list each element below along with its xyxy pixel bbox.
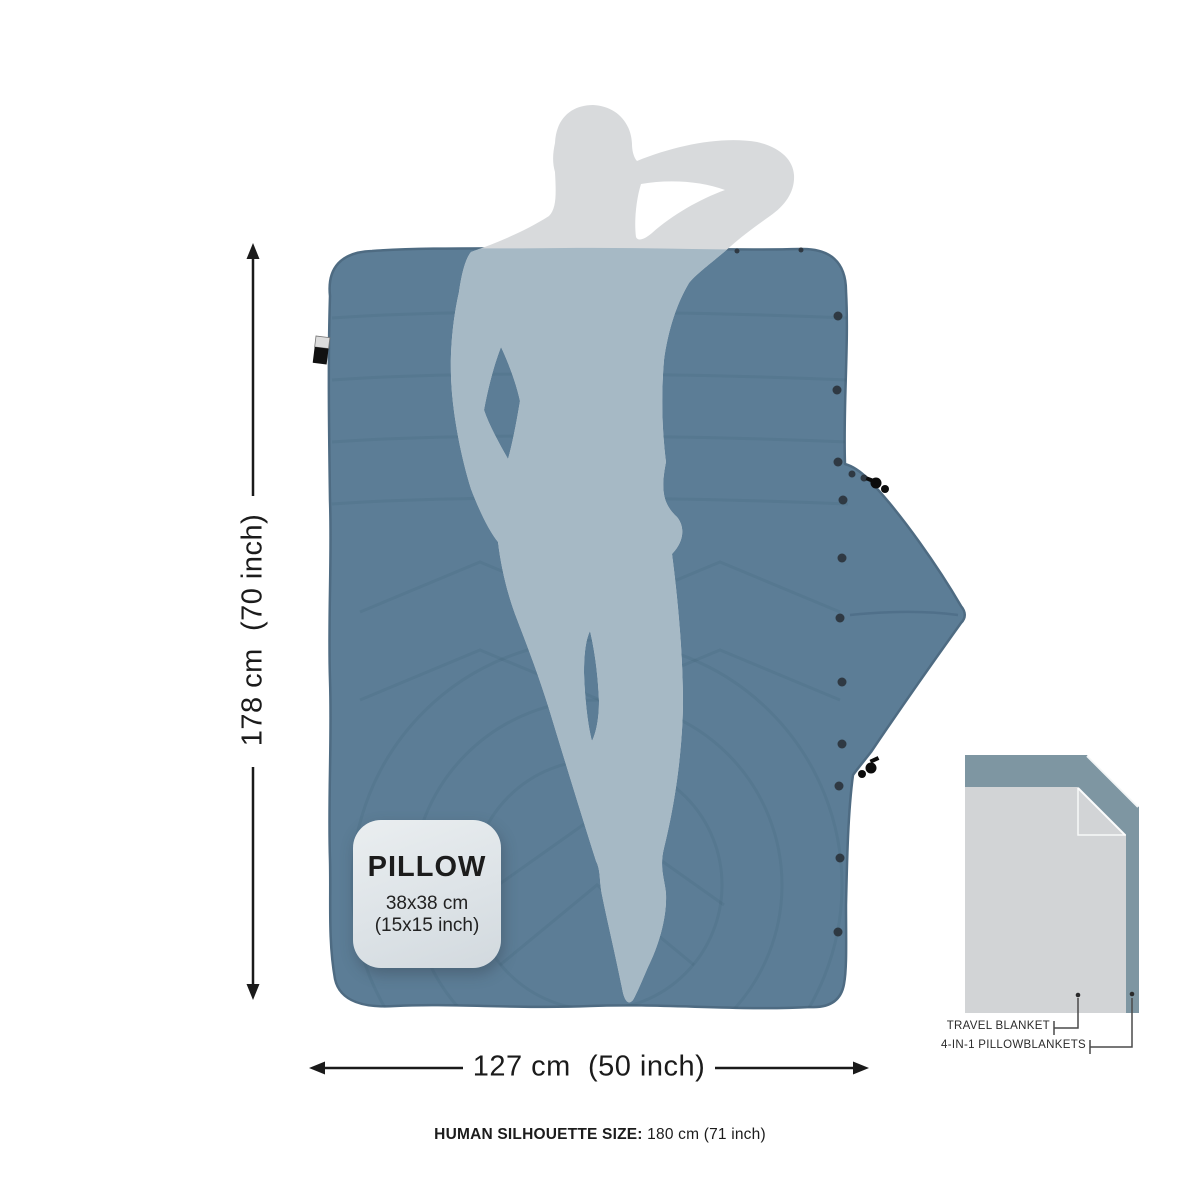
pillow-size-inch: (15x15 inch) <box>375 915 480 937</box>
inset-diagram <box>965 755 1139 1054</box>
caption-value: 180 cm (71 inch) <box>647 1126 766 1143</box>
arrowhead-down <box>247 984 260 1000</box>
caption-bold: HUMAN SILHOUETTE SIZE: <box>434 1126 642 1143</box>
inset-label-pillowblankets: 4-IN-1 PILLOWBLANKETS <box>941 1039 1086 1051</box>
snap-button <box>835 782 844 791</box>
arrowhead-up <box>247 243 260 259</box>
pillow-title: PILLOW <box>368 851 487 884</box>
marker-dot-pillowblankets <box>1130 992 1135 997</box>
width-label: 127 cm (50 inch) <box>473 1051 706 1084</box>
pillow-size-cm: 38x38 cm <box>386 893 468 915</box>
snap-button <box>834 312 843 321</box>
snap-button <box>834 458 843 467</box>
silhouette-size-caption: HUMAN SILHOUETTE SIZE: 180 cm (71 inch) <box>0 1126 1200 1144</box>
arrowhead-left <box>309 1062 325 1075</box>
snap-button <box>836 614 845 623</box>
snap-button <box>838 678 847 687</box>
product-dimension-diagram: 178 cm (70 inch) 127 cm (50 inch) PILLOW… <box>0 0 1200 1200</box>
snap-button <box>839 496 848 505</box>
arrowhead-right <box>853 1062 869 1075</box>
snap-button <box>799 248 804 253</box>
snap-button <box>735 249 740 254</box>
pillow-card: PILLOW 38x38 cm (15x15 inch) <box>353 820 501 968</box>
snap-button <box>833 386 842 395</box>
snap-button <box>838 554 847 563</box>
snap-button <box>849 471 856 478</box>
brand-tag <box>313 336 330 365</box>
snap-button <box>838 740 847 749</box>
inset-front-sheet <box>965 787 1126 1013</box>
inset-label-travel-blanket: TRAVEL BLANKET <box>947 1020 1050 1032</box>
snap-button <box>836 854 845 863</box>
snap-button <box>834 928 843 937</box>
height-label: 178 cm (70 inch) <box>237 514 270 747</box>
marker-dot-travel-blanket <box>1076 993 1081 998</box>
